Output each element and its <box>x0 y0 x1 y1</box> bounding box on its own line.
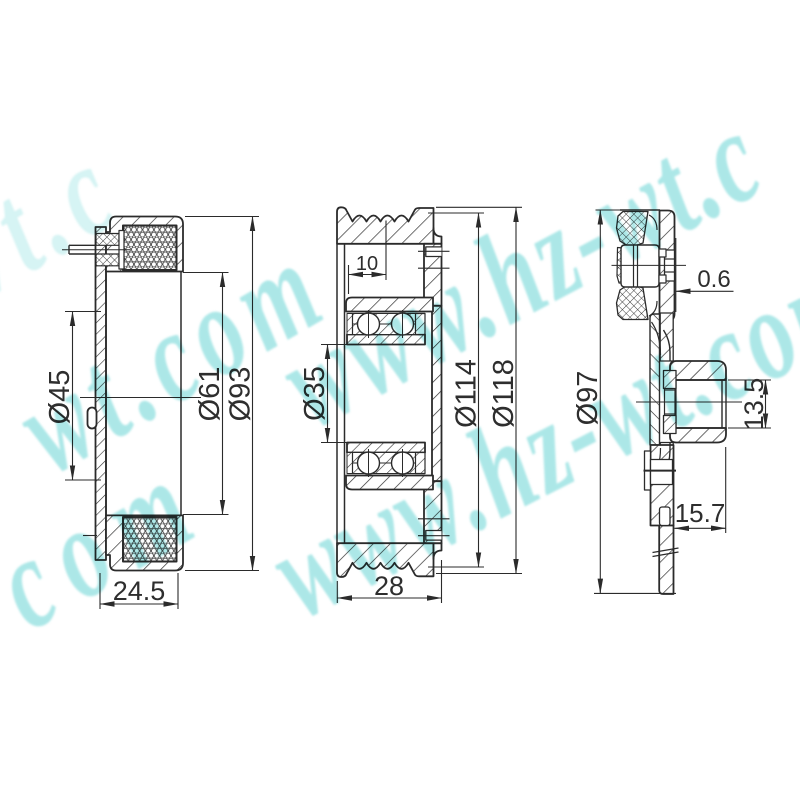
svg-text:15.7: 15.7 <box>675 498 726 528</box>
